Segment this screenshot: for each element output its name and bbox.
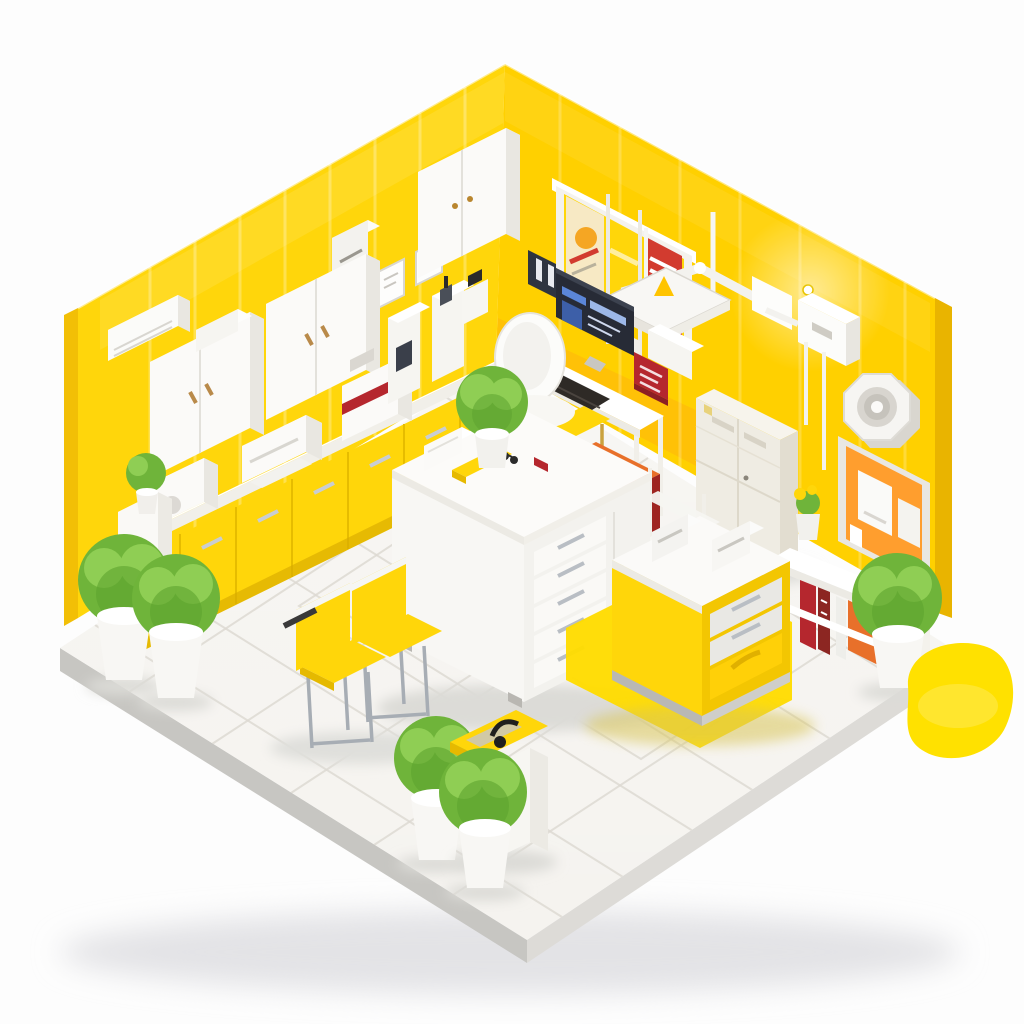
scene-canvas <box>0 0 1024 1024</box>
isometric-room-illustration: Isometric 3D render of a yellow clinic r… <box>0 0 1024 1024</box>
